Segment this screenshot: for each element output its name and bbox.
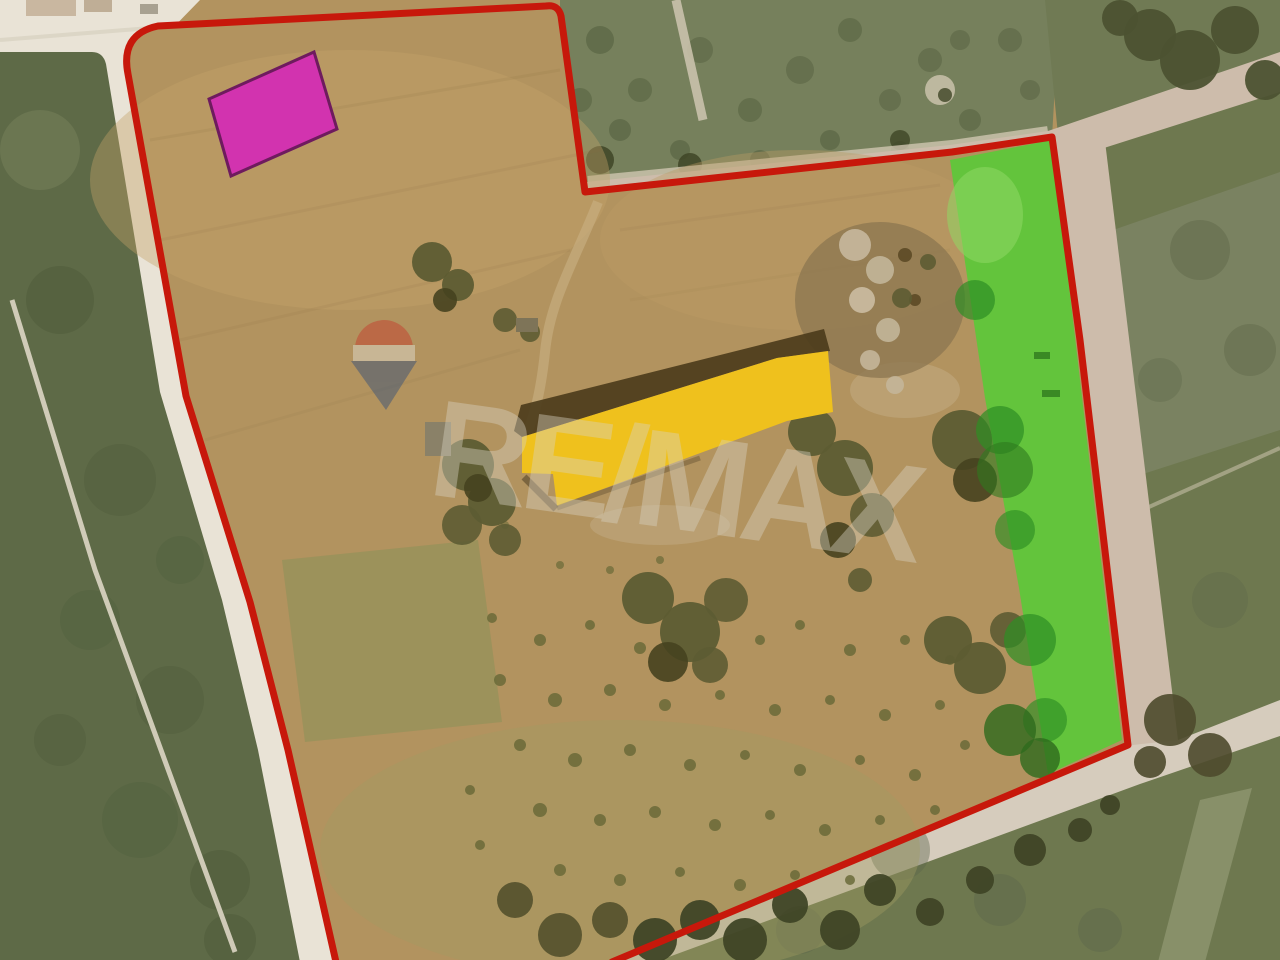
texture-blob bbox=[649, 806, 661, 818]
texture-blob bbox=[585, 620, 595, 630]
texture-blob bbox=[918, 48, 942, 72]
texture-blob bbox=[1100, 795, 1120, 815]
aerial-map: RE/MAX bbox=[0, 0, 1280, 960]
texture-blob bbox=[1160, 30, 1220, 90]
texture-blob bbox=[538, 913, 582, 957]
texture-blob bbox=[838, 18, 862, 42]
texture-blob bbox=[898, 248, 912, 262]
texture-blob bbox=[864, 874, 896, 906]
texture-blob bbox=[1068, 818, 1092, 842]
balloon-band bbox=[353, 345, 415, 361]
texture-blob bbox=[497, 882, 533, 918]
texture-blob bbox=[876, 318, 900, 342]
texture-blob bbox=[820, 910, 860, 950]
texture-blob bbox=[624, 744, 636, 756]
texture-blob bbox=[1134, 746, 1166, 778]
texture-blob bbox=[849, 287, 875, 313]
texture-blob bbox=[879, 709, 891, 721]
texture-blob bbox=[1020, 80, 1040, 100]
texture-blob bbox=[494, 674, 506, 686]
texture-blob bbox=[648, 642, 688, 682]
texture-blob bbox=[594, 814, 606, 826]
texture-blob bbox=[692, 647, 728, 683]
texture-blob bbox=[493, 308, 517, 332]
texture-blob bbox=[709, 819, 721, 831]
texture-blob bbox=[465, 785, 475, 795]
texture-blob bbox=[26, 266, 94, 334]
texture-blob bbox=[136, 666, 204, 734]
texture-blob bbox=[675, 867, 685, 877]
texture-blob bbox=[1138, 358, 1182, 402]
texture-blob bbox=[916, 898, 944, 926]
texture-blob bbox=[995, 510, 1035, 550]
texture-blob bbox=[1020, 738, 1060, 778]
texture-blob bbox=[954, 642, 1006, 694]
texture-blob bbox=[487, 613, 497, 623]
texture-blob bbox=[1188, 733, 1232, 777]
texture-blob bbox=[844, 644, 856, 656]
texture-blob bbox=[998, 28, 1022, 52]
texture-blob bbox=[592, 902, 628, 938]
texture-blob bbox=[765, 810, 775, 820]
texture-blob bbox=[909, 769, 921, 781]
vegetation-mark bbox=[1042, 390, 1060, 397]
texture-blob bbox=[0, 110, 80, 190]
texture-blob bbox=[966, 866, 994, 894]
texture-blob bbox=[1014, 834, 1046, 866]
texture-blob bbox=[628, 78, 652, 102]
texture-blob bbox=[1078, 908, 1122, 952]
texture-blob bbox=[879, 89, 901, 111]
texture-blob bbox=[514, 739, 526, 751]
texture-blob bbox=[786, 56, 814, 84]
texture-blob bbox=[1102, 0, 1138, 36]
texture-blob bbox=[875, 815, 885, 825]
light-soil-patch bbox=[90, 50, 610, 310]
texture-blob bbox=[586, 26, 614, 54]
small-hut bbox=[516, 318, 538, 332]
texture-blob bbox=[475, 840, 485, 850]
texture-blob bbox=[548, 693, 562, 707]
green-subfield bbox=[282, 540, 502, 742]
texture-blob bbox=[1211, 6, 1259, 54]
texture-blob bbox=[820, 130, 840, 150]
texture-blob bbox=[34, 714, 86, 766]
texture-blob bbox=[860, 350, 880, 370]
texture-blob bbox=[845, 875, 855, 885]
texture-blob bbox=[795, 620, 805, 630]
texture-blob bbox=[684, 759, 696, 771]
texture-blob bbox=[955, 280, 995, 320]
texture-blob bbox=[769, 704, 781, 716]
texture-blob bbox=[554, 864, 566, 876]
texture-blob bbox=[790, 870, 800, 880]
texture-blob bbox=[1004, 614, 1056, 666]
farm-building bbox=[26, 0, 76, 16]
texture-blob bbox=[1224, 324, 1276, 376]
texture-blob bbox=[715, 690, 725, 700]
texture-blob bbox=[950, 30, 970, 50]
texture-blob bbox=[609, 119, 631, 141]
texture-blob bbox=[734, 879, 746, 891]
texture-blob bbox=[960, 740, 970, 750]
texture-blob bbox=[606, 566, 614, 574]
vegetation-mark bbox=[1034, 352, 1050, 359]
texture-blob bbox=[930, 805, 940, 815]
texture-blob bbox=[659, 699, 671, 711]
texture-blob bbox=[825, 695, 835, 705]
texture-blob bbox=[1170, 220, 1230, 280]
texture-blob bbox=[634, 642, 646, 654]
texture-blob bbox=[920, 254, 936, 270]
satellite-image: RE/MAX bbox=[0, 0, 1280, 960]
texture-blob bbox=[533, 803, 547, 817]
texture-blob bbox=[866, 256, 894, 284]
texture-blob bbox=[433, 288, 457, 312]
texture-blob bbox=[738, 98, 762, 122]
farm-building bbox=[84, 0, 112, 12]
green-light-patch bbox=[947, 167, 1023, 263]
texture-blob bbox=[84, 444, 156, 516]
texture-blob bbox=[723, 918, 767, 960]
texture-blob bbox=[1144, 694, 1196, 746]
texture-blob bbox=[938, 88, 952, 102]
texture-blob bbox=[900, 635, 910, 645]
texture-blob bbox=[855, 755, 865, 765]
texture-blob bbox=[755, 635, 765, 645]
texture-blob bbox=[156, 536, 204, 584]
texture-blob bbox=[959, 109, 981, 131]
texture-blob bbox=[839, 229, 871, 261]
texture-blob bbox=[892, 288, 912, 308]
texture-blob bbox=[886, 376, 904, 394]
texture-blob bbox=[102, 782, 178, 858]
texture-blob bbox=[740, 750, 750, 760]
texture-blob bbox=[704, 578, 748, 622]
texture-blob bbox=[925, 75, 955, 105]
farm-building bbox=[140, 4, 158, 14]
texture-blob bbox=[1192, 572, 1248, 628]
texture-blob bbox=[977, 442, 1033, 498]
texture-blob bbox=[534, 634, 546, 646]
texture-blob bbox=[819, 824, 831, 836]
texture-blob bbox=[935, 700, 945, 710]
texture-blob bbox=[614, 874, 626, 886]
texture-blob bbox=[568, 753, 582, 767]
texture-blob bbox=[604, 684, 616, 696]
texture-blob bbox=[794, 764, 806, 776]
texture-blob bbox=[556, 561, 564, 569]
